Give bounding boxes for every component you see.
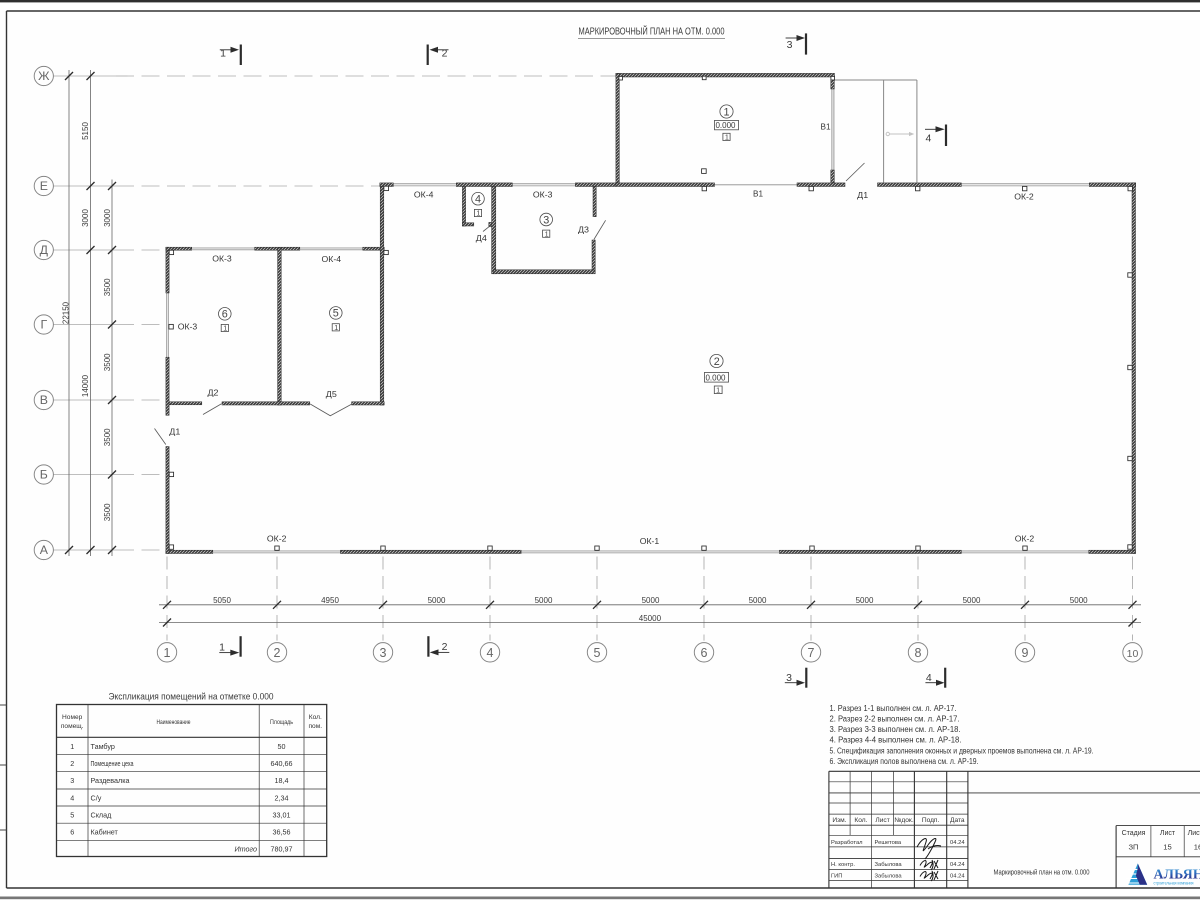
svg-text:3: 3: [786, 672, 792, 684]
svg-text:2: 2: [442, 641, 448, 653]
svg-text:ОК-3: ОК-3: [178, 322, 198, 331]
svg-text:45000: 45000: [639, 614, 662, 623]
svg-text:Д4: Д4: [476, 234, 487, 243]
svg-text:В1: В1: [821, 122, 831, 131]
svg-text:Номер: Номер: [62, 714, 83, 721]
svg-text:1: 1: [164, 646, 171, 660]
svg-text:ОК-1: ОК-1: [640, 537, 660, 546]
svg-text:Н. контр.: Н. контр.: [831, 862, 855, 868]
svg-text:В1: В1: [753, 189, 763, 198]
svg-text:5000: 5000: [428, 596, 446, 605]
svg-text:Кабинет: Кабинет: [91, 828, 119, 837]
svg-text:1: 1: [545, 229, 549, 238]
svg-text:4950: 4950: [321, 596, 339, 605]
svg-text:ОК-2: ОК-2: [1015, 535, 1035, 544]
svg-text:3000: 3000: [81, 209, 90, 227]
svg-text:1. Разрез 1-1 выполнен см. л.: 1. Разрез 1-1 выполнен см. л. АР-17.: [830, 704, 957, 713]
svg-text:Раздевалка: Раздевалка: [91, 776, 130, 785]
svg-text:5000: 5000: [1070, 596, 1088, 605]
svg-text:4: 4: [475, 194, 481, 206]
svg-text:Изм.: Изм.: [832, 817, 846, 824]
svg-text:Итого: Итого: [234, 844, 257, 853]
svg-text:6: 6: [701, 646, 708, 660]
svg-text:2,34: 2,34: [275, 793, 289, 802]
svg-text:2: 2: [70, 759, 74, 768]
svg-text:Кол.: Кол.: [854, 817, 867, 824]
svg-text:ЗП: ЗП: [1128, 843, 1138, 852]
svg-text:7: 7: [808, 646, 815, 660]
svg-text:Листов: Листов: [1188, 830, 1200, 837]
svg-text:2: 2: [442, 47, 448, 59]
svg-text:15: 15: [1163, 843, 1171, 852]
svg-text:5000: 5000: [963, 596, 981, 605]
svg-text:4. Разрез 4-4 выполнен см. л.: 4. Разрез 4-4 выполнен см. л. АР-18.: [830, 736, 962, 745]
svg-text:помещ.: помещ.: [61, 723, 84, 730]
svg-text:3000: 3000: [103, 209, 112, 227]
svg-text:780,97: 780,97: [271, 844, 293, 853]
svg-text:Стадия: Стадия: [1122, 830, 1146, 837]
svg-text:Дата: Дата: [950, 817, 965, 824]
svg-text:Лист: Лист: [1160, 830, 1176, 837]
svg-text:0.000: 0.000: [705, 373, 726, 382]
svg-text:Помещение цеха: Помещение цеха: [91, 759, 134, 768]
svg-text:1: 1: [725, 133, 729, 142]
svg-text:Склад: Склад: [91, 810, 113, 819]
svg-text:2. Разрез 2-2 выполнен см. л.: 2. Разрез 2-2 выполнен см. л. АР-17.: [830, 715, 960, 724]
svg-text:3500: 3500: [103, 428, 112, 446]
svg-text:3: 3: [543, 214, 549, 226]
svg-text:№док.: №док.: [894, 817, 913, 824]
svg-text:5: 5: [70, 810, 74, 819]
svg-text:Г: Г: [40, 318, 47, 332]
svg-text:50: 50: [278, 742, 286, 751]
svg-text:3: 3: [70, 776, 74, 785]
svg-text:640,66: 640,66: [271, 759, 293, 768]
svg-text:5150: 5150: [81, 122, 90, 140]
svg-text:1: 1: [220, 47, 226, 59]
svg-text:Е: Е: [40, 179, 48, 193]
svg-text:ОК-3: ОК-3: [212, 255, 232, 264]
svg-text:22150: 22150: [61, 301, 70, 324]
svg-text:1: 1: [70, 742, 74, 751]
svg-text:Д1: Д1: [857, 191, 868, 200]
svg-text:Тамбур: Тамбур: [91, 742, 115, 751]
svg-text:В: В: [40, 393, 48, 407]
svg-text:18,4: 18,4: [275, 776, 289, 785]
svg-text:4: 4: [926, 672, 932, 684]
svg-text:Д2: Д2: [208, 389, 219, 398]
svg-text:4: 4: [70, 793, 74, 802]
svg-text:Забылова: Забылова: [875, 873, 903, 879]
svg-text:Экспликация помещений на отмет: Экспликация помещений на отметке 0.000: [109, 692, 274, 702]
svg-text:8: 8: [915, 646, 922, 660]
svg-text:3500: 3500: [103, 503, 112, 521]
svg-text:Маркировочный план на отм. 0.0: Маркировочный план на отм. 0.000: [994, 869, 1090, 877]
svg-text:Б: Б: [40, 468, 48, 482]
svg-text:ГИП: ГИП: [831, 873, 842, 879]
svg-text:6: 6: [70, 828, 74, 837]
svg-text:5000: 5000: [535, 596, 553, 605]
svg-text:Подп.: Подп.: [922, 817, 940, 824]
svg-text:33,01: 33,01: [273, 810, 291, 819]
svg-text:4: 4: [925, 132, 931, 144]
svg-text:04.24: 04.24: [950, 862, 965, 868]
svg-text:36,56: 36,56: [273, 828, 291, 837]
svg-text:04.24: 04.24: [950, 840, 965, 846]
svg-text:Ж: Ж: [38, 69, 50, 83]
svg-text:ОК-4: ОК-4: [414, 190, 434, 199]
svg-text:С/у: С/у: [91, 793, 102, 802]
svg-text:Наименование: Наименование: [157, 719, 191, 726]
svg-text:Кол.: Кол.: [309, 714, 322, 721]
svg-text:Лист: Лист: [875, 817, 889, 824]
svg-text:0.000: 0.000: [715, 121, 736, 130]
svg-text:Д3: Д3: [578, 226, 589, 235]
svg-text:5: 5: [333, 308, 339, 320]
svg-text:1: 1: [723, 106, 729, 118]
svg-text:6: 6: [222, 309, 228, 321]
svg-text:АЛЬЯНС: АЛЬЯНС: [1154, 867, 1200, 882]
svg-text:5050: 5050: [213, 596, 231, 605]
svg-text:16: 16: [1194, 843, 1200, 852]
svg-text:ОК-2: ОК-2: [1014, 193, 1034, 202]
svg-text:5000: 5000: [749, 596, 767, 605]
svg-text:2: 2: [714, 356, 720, 368]
svg-text:14000: 14000: [81, 374, 90, 397]
svg-text:6. Экспликация полов выполнена: 6. Экспликация полов выполнена см. л. АР…: [830, 757, 979, 766]
svg-text:5: 5: [594, 646, 601, 660]
svg-text:пом.: пом.: [308, 723, 322, 730]
svg-text:Д5: Д5: [326, 390, 337, 399]
svg-text:1: 1: [219, 641, 225, 653]
svg-text:Решетова: Решетова: [875, 840, 902, 846]
svg-text:5000: 5000: [642, 596, 660, 605]
svg-text:3. Разрез 3-3 выполнен см. л.: 3. Разрез 3-3 выполнен см. л. АР-18.: [830, 725, 961, 734]
svg-text:5000: 5000: [856, 596, 874, 605]
svg-text:Д1: Д1: [169, 428, 180, 437]
svg-text:3500: 3500: [103, 353, 112, 371]
svg-text:3500: 3500: [103, 278, 112, 296]
svg-text:1: 1: [334, 323, 338, 332]
svg-text:9: 9: [1022, 646, 1029, 660]
svg-text:ОК-3: ОК-3: [533, 190, 553, 199]
svg-text:Забылова: Забылова: [875, 862, 903, 868]
svg-text:5. Спецификация заполнения око: 5. Спецификация заполнения оконных и две…: [830, 747, 1094, 756]
svg-text:3: 3: [380, 646, 387, 660]
svg-text:ОК-2: ОК-2: [267, 534, 287, 543]
svg-text:10: 10: [1127, 648, 1139, 660]
svg-text:Разработал: Разработал: [831, 840, 863, 846]
svg-text:1: 1: [476, 209, 480, 218]
svg-text:04.24: 04.24: [950, 873, 965, 879]
svg-text:А: А: [40, 543, 49, 557]
svg-text:3: 3: [787, 39, 793, 51]
svg-text:1: 1: [716, 386, 720, 395]
svg-text:ОК-4: ОК-4: [322, 255, 342, 264]
svg-text:Площадь: Площадь: [270, 719, 293, 726]
svg-text:2: 2: [274, 646, 281, 660]
svg-text:4: 4: [487, 646, 494, 660]
svg-text:МАРКИРОВОЧНЫЙ ПЛАН НА ОТМ. 0.0: МАРКИРОВОЧНЫЙ ПЛАН НА ОТМ. 0.000: [579, 26, 725, 38]
svg-text:Д: Д: [40, 243, 49, 257]
svg-text:строительная компания: строительная компания: [1154, 880, 1194, 885]
svg-text:1: 1: [223, 324, 227, 333]
